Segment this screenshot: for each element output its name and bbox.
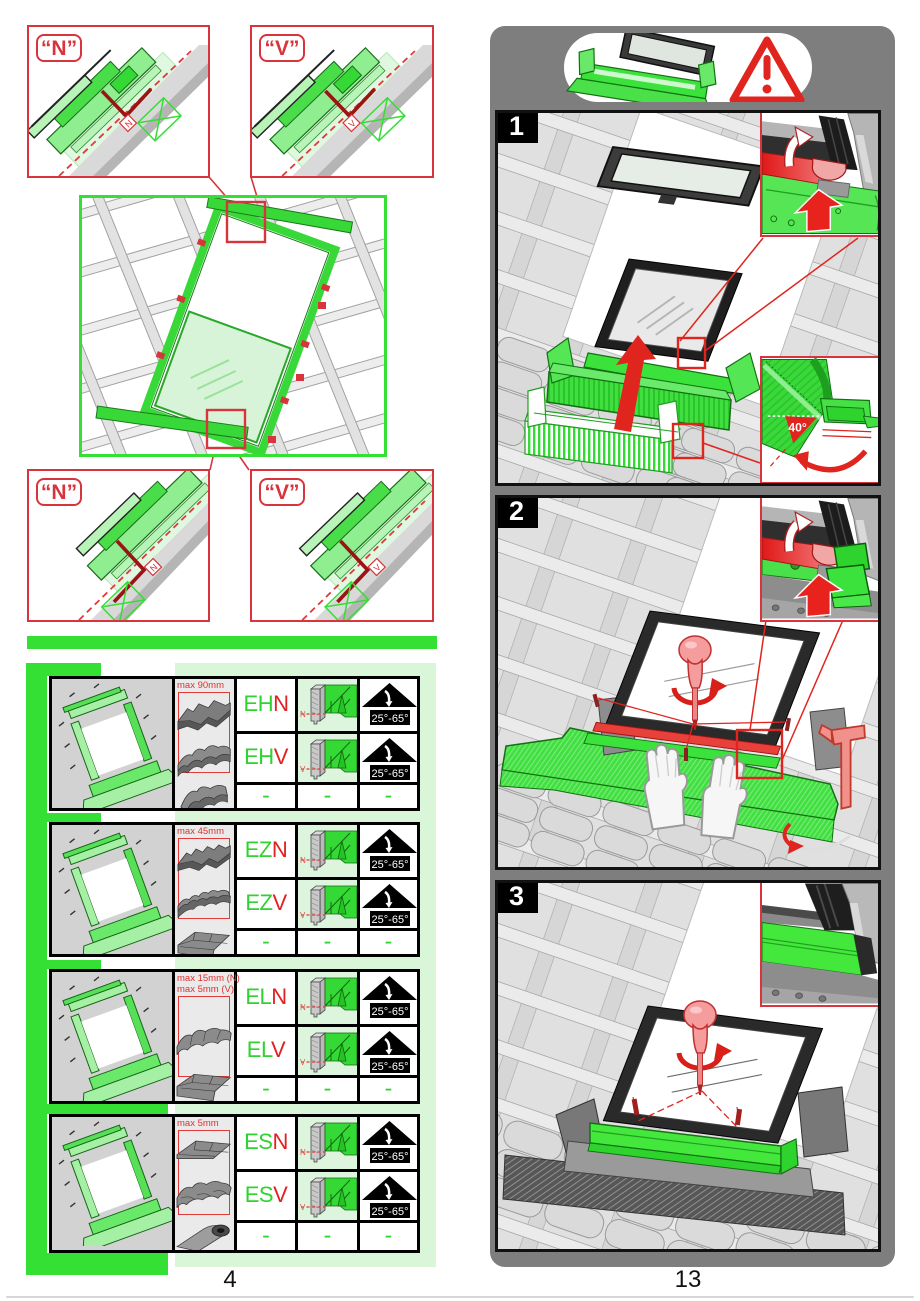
svg-text:25°-65°: 25°-65° (372, 1206, 409, 1218)
svg-text:N: N (300, 1003, 306, 1012)
svg-text:25°-65°: 25°-65° (372, 859, 409, 871)
svg-text:V: V (300, 1203, 306, 1212)
svg-text:25°-65°: 25°-65° (372, 1061, 409, 1073)
svg-text:25°-65°: 25°-65° (372, 713, 409, 725)
svg-text:N: N (300, 710, 306, 719)
svg-text:N: N (300, 856, 306, 865)
svg-text:25°-65°: 25°-65° (372, 768, 409, 780)
svg-text:V: V (300, 911, 306, 920)
svg-text:25°-65°: 25°-65° (372, 1151, 409, 1163)
svg-text:25°-65°: 25°-65° (372, 914, 409, 926)
svg-text:25°-65°: 25°-65° (372, 1006, 409, 1018)
svg-text:V: V (300, 765, 306, 774)
svg-text:40°: 40° (788, 421, 807, 435)
svg-text:N: N (300, 1148, 306, 1157)
svg-text:V: V (300, 1058, 306, 1067)
